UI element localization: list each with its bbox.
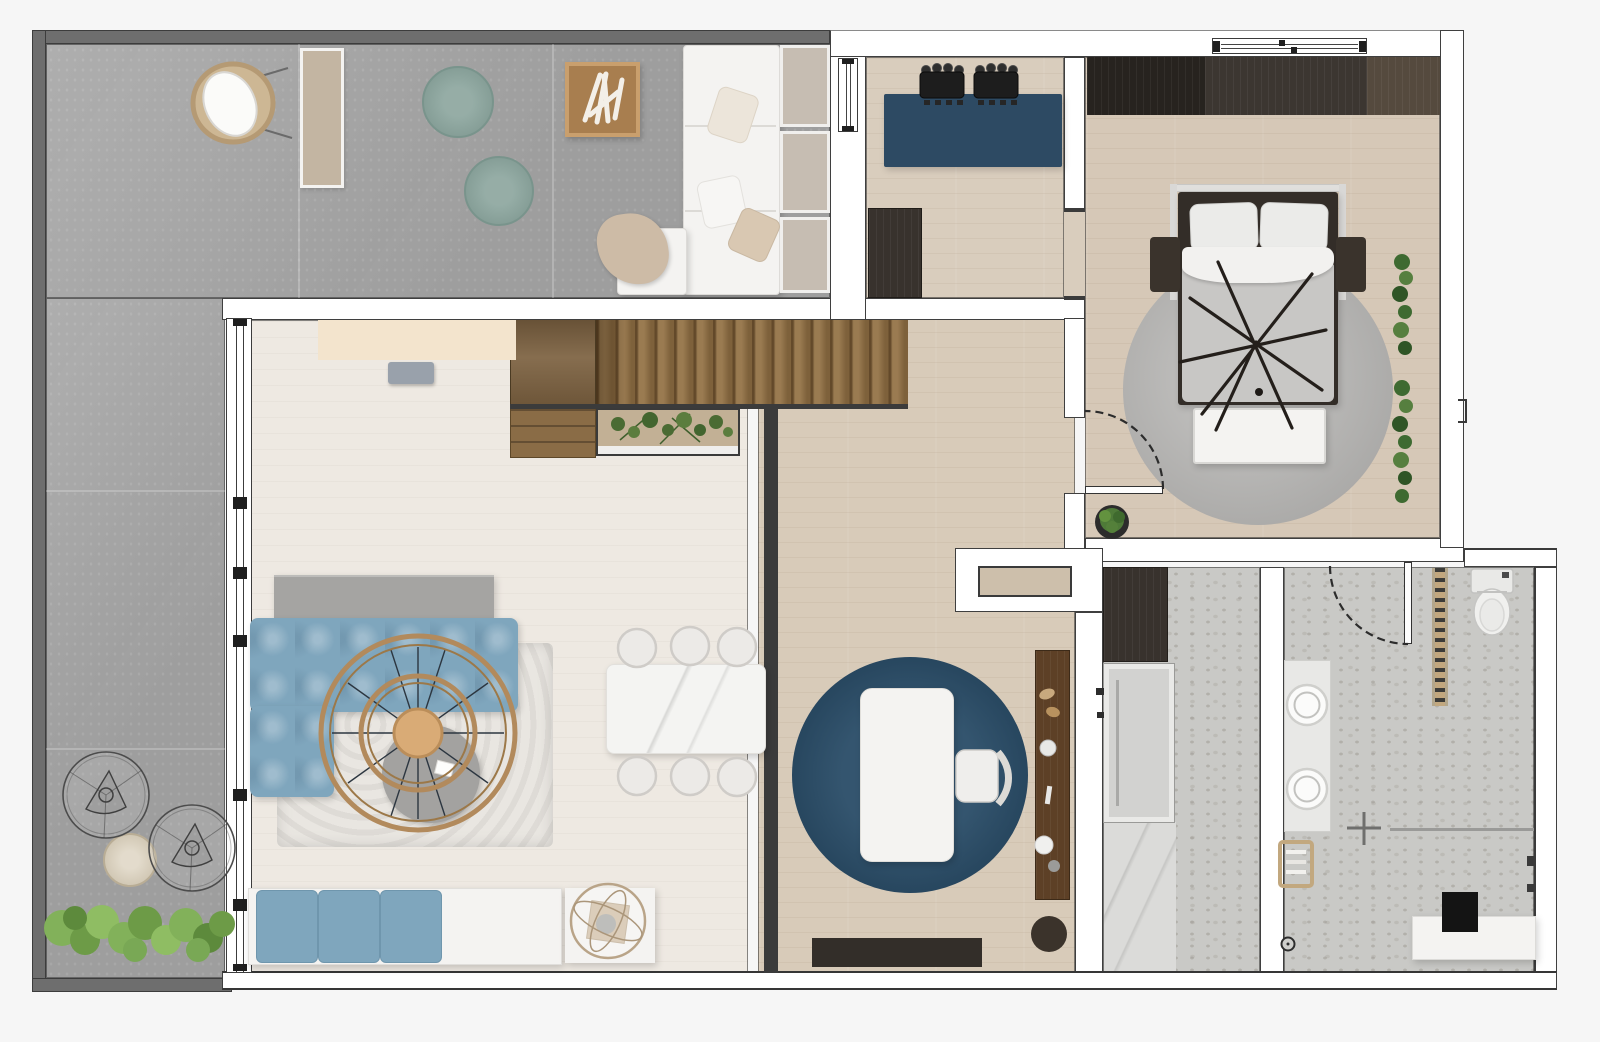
tile-joint — [552, 44, 554, 298]
side-table — [565, 888, 655, 963]
nightstand — [1336, 237, 1366, 292]
bath-door-leaf — [1404, 562, 1412, 644]
seat-cushion — [256, 890, 318, 963]
window-cap — [842, 126, 854, 131]
window-mullion — [233, 964, 247, 971]
tile-joint — [46, 490, 225, 492]
window-mullion — [1291, 47, 1297, 53]
door-frame-tick — [1064, 208, 1085, 212]
window-cap — [1359, 41, 1366, 52]
office-door-opening — [1064, 212, 1085, 298]
privacy-panel — [780, 45, 830, 127]
shower-screen — [1390, 828, 1534, 831]
sofa-modular-top — [250, 618, 518, 712]
wall-mixer — [1527, 884, 1535, 892]
bed-pillow — [1189, 202, 1259, 252]
wall-office-bedroom — [1064, 57, 1085, 212]
wall-living-study — [764, 406, 778, 973]
wall-hall-bedroom-upper — [1064, 318, 1085, 418]
outdoor-pouf — [103, 833, 157, 887]
storage-box — [1442, 892, 1478, 932]
marble-floor-section — [1104, 822, 1176, 974]
privacy-panel — [780, 131, 830, 213]
wall-hall-bedroom-lower — [1064, 493, 1085, 553]
sofa-modular-left — [250, 706, 334, 797]
office-desk — [884, 94, 1062, 167]
wardrobe-right — [1367, 57, 1440, 115]
bed-bench — [1193, 408, 1326, 464]
bedroom-right-wall — [1440, 30, 1464, 548]
door-frame-tick — [1064, 296, 1085, 300]
wall-niche-opening — [978, 566, 1072, 597]
wall-mixer — [1527, 856, 1535, 866]
corner-wall-step — [1464, 548, 1557, 567]
terrace-outer-wall-top — [32, 30, 830, 44]
planter-rim — [598, 446, 738, 454]
window-cap — [1213, 41, 1220, 52]
window-mullion — [233, 899, 247, 911]
top-exterior-wall — [830, 30, 1464, 57]
study-runner-rug — [812, 938, 982, 967]
wall-vent-marker — [1458, 399, 1467, 423]
seat-cushion — [318, 890, 380, 963]
office-cabinet — [868, 208, 922, 298]
study-table — [860, 688, 954, 862]
sideboard — [274, 575, 494, 618]
under-stair-steps — [510, 408, 596, 458]
bath-right-wall — [1534, 567, 1557, 975]
bed-duvet — [1182, 264, 1334, 402]
window-mullion — [233, 567, 247, 579]
shower-drain-line — [1116, 680, 1119, 806]
firewood-tray — [565, 62, 640, 137]
bed-pillow — [1259, 202, 1329, 252]
towel-ladder — [1432, 568, 1448, 706]
teal-pouf — [464, 156, 534, 226]
floor-plan — [0, 0, 1600, 1042]
window-mullion — [233, 319, 247, 326]
privacy-panel — [780, 217, 830, 293]
window-mullion — [233, 635, 247, 647]
gray-stool — [388, 362, 434, 384]
cream-console — [318, 320, 516, 360]
window-mullion — [233, 497, 247, 509]
wardrobe-left — [1087, 57, 1205, 115]
window-glass — [1221, 44, 1358, 49]
vanity-counter — [1284, 660, 1331, 832]
window-cap — [842, 59, 854, 64]
bed-headboard — [1170, 184, 1346, 192]
shower-room-cabinet — [1103, 567, 1168, 662]
wardrobe-middle — [1205, 57, 1367, 115]
office-window — [838, 58, 858, 132]
shower-tray — [1104, 664, 1174, 822]
coffee-table — [382, 725, 480, 823]
staircase-treads — [596, 316, 908, 408]
bottom-exterior-wall — [222, 971, 1557, 990]
dining-table — [606, 664, 766, 754]
study-pouf — [1031, 916, 1067, 952]
wall-bedroom-bath — [1085, 538, 1464, 562]
living-window-wall — [226, 318, 252, 973]
terrace-outer-wall-bottom — [32, 978, 232, 992]
seat-cushion — [380, 890, 442, 963]
window-mullion — [1279, 40, 1285, 46]
runner-rug — [300, 48, 344, 188]
window-glass — [846, 63, 851, 127]
wall-study-shower — [1075, 612, 1103, 978]
teal-pouf — [422, 66, 494, 138]
study-console — [1035, 650, 1070, 900]
bedroom-window — [1212, 38, 1367, 54]
nightstand — [1150, 237, 1180, 292]
stair-cabinet — [510, 316, 596, 408]
tile-joint — [46, 748, 225, 750]
bedroom-door-leaf — [1085, 486, 1163, 494]
window-mullion — [233, 789, 247, 801]
wall-terrace-living — [222, 298, 1085, 320]
wall-shower-bath — [1260, 567, 1284, 975]
terrace-outer-wall-left — [32, 30, 46, 992]
